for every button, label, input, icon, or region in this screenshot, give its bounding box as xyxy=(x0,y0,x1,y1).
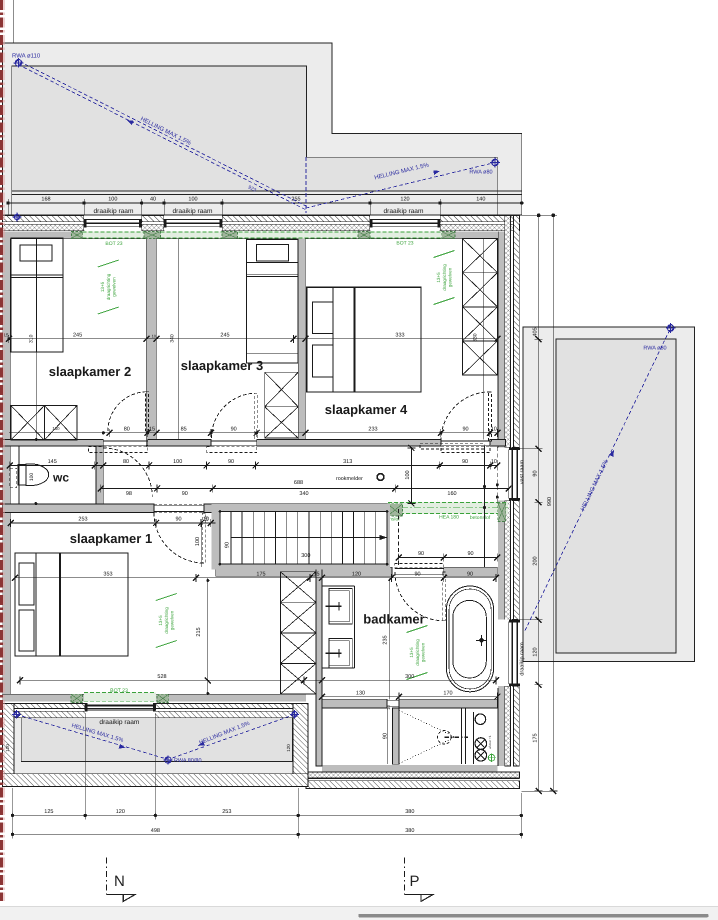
svg-text:380: 380 xyxy=(405,828,414,834)
svg-text:310: 310 xyxy=(28,334,34,343)
svg-text:160: 160 xyxy=(447,491,456,497)
svg-text:draaikip raam: draaikip raam xyxy=(520,642,526,676)
svg-text:draaikip raam: draaikip raam xyxy=(94,208,134,215)
svg-text:200: 200 xyxy=(532,556,538,565)
svg-text:100: 100 xyxy=(188,197,197,203)
svg-text:90: 90 xyxy=(182,491,188,497)
svg-text:175: 175 xyxy=(532,733,538,742)
svg-text:120: 120 xyxy=(116,809,125,815)
svg-text:253: 253 xyxy=(78,517,87,523)
svg-text:betonslof: betonslof xyxy=(470,515,491,521)
svg-text:90: 90 xyxy=(532,470,538,476)
svg-text:slaapkamer 4: slaapkamer 4 xyxy=(325,402,408,417)
svg-text:P: P xyxy=(410,873,420,890)
svg-text:90: 90 xyxy=(231,427,237,433)
svg-text:BOT 23: BOT 23 xyxy=(110,688,128,694)
svg-text:10: 10 xyxy=(152,334,157,339)
svg-text:RWA ø80: RWA ø80 xyxy=(643,346,666,352)
svg-text:175: 175 xyxy=(256,572,265,578)
svg-text:RWA ø80: RWA ø80 xyxy=(469,170,492,176)
svg-text:340: 340 xyxy=(299,491,308,497)
svg-text:215: 215 xyxy=(196,627,202,636)
svg-text:draagrichting: draagrichting xyxy=(442,264,447,291)
svg-text:gewelven: gewelven xyxy=(421,642,426,662)
svg-text:vast raam: vast raam xyxy=(520,460,526,485)
svg-text:draagrichting: draagrichting xyxy=(164,607,169,634)
svg-text:100: 100 xyxy=(29,473,35,482)
svg-text:RWA 80/80: RWA 80/80 xyxy=(174,758,202,764)
svg-text:10: 10 xyxy=(491,459,497,465)
svg-text:990: 990 xyxy=(547,497,553,506)
svg-text:245: 245 xyxy=(73,333,82,339)
svg-text:90: 90 xyxy=(383,733,389,739)
svg-text:13+5: 13+5 xyxy=(409,647,414,658)
svg-text:N: N xyxy=(114,873,125,890)
svg-text:90: 90 xyxy=(228,459,234,465)
svg-text:badkamer: badkamer xyxy=(363,612,424,627)
svg-text:BOT 23: BOT 23 xyxy=(396,241,413,247)
svg-text:wc: wc xyxy=(52,471,69,485)
svg-text:90: 90 xyxy=(175,517,181,523)
svg-text:380: 380 xyxy=(405,809,414,815)
svg-text:90: 90 xyxy=(462,427,468,433)
svg-text:100: 100 xyxy=(173,459,182,465)
svg-text:340: 340 xyxy=(169,334,175,343)
svg-text:688: 688 xyxy=(294,480,303,486)
svg-text:80: 80 xyxy=(123,459,129,465)
svg-text:100: 100 xyxy=(195,537,201,546)
svg-text:15: 15 xyxy=(149,427,155,433)
svg-text:120: 120 xyxy=(352,572,361,578)
svg-text:498: 498 xyxy=(151,828,160,834)
svg-text:13+5: 13+5 xyxy=(100,281,105,292)
svg-text:168: 168 xyxy=(41,197,50,203)
svg-text:draagrichting: draagrichting xyxy=(415,639,420,666)
svg-text:draaikip raam: draaikip raam xyxy=(99,719,139,726)
svg-text:RWA ø110: RWA ø110 xyxy=(12,53,41,60)
svg-text:90: 90 xyxy=(462,459,468,465)
svg-text:140: 140 xyxy=(476,197,485,203)
svg-text:90: 90 xyxy=(414,572,420,578)
svg-text:313: 313 xyxy=(343,459,352,465)
svg-text:405: 405 xyxy=(532,327,538,336)
svg-text:gewelven: gewelven xyxy=(112,277,117,297)
svg-text:253: 253 xyxy=(222,809,231,815)
svg-text:draagrichting: draagrichting xyxy=(106,273,111,300)
svg-text:120: 120 xyxy=(532,647,538,656)
svg-text:10: 10 xyxy=(491,427,497,433)
svg-text:233: 233 xyxy=(368,427,377,433)
svg-text:333: 333 xyxy=(395,333,404,339)
svg-text:15: 15 xyxy=(313,572,319,578)
svg-text:330: 330 xyxy=(472,333,478,342)
svg-text:gewelven: gewelven xyxy=(448,267,453,287)
svg-text:98: 98 xyxy=(126,491,132,497)
svg-text:afvoer +1: afvoer +1 xyxy=(488,735,492,749)
svg-text:90: 90 xyxy=(225,542,231,548)
svg-text:120: 120 xyxy=(286,744,291,752)
svg-text:40: 40 xyxy=(150,197,156,203)
svg-text:slaapkamer 1: slaapkamer 1 xyxy=(70,531,152,546)
svg-text:145: 145 xyxy=(48,459,57,465)
svg-text:85: 85 xyxy=(181,427,187,433)
svg-text:245: 245 xyxy=(220,333,229,339)
svg-text:draaikip raam: draaikip raam xyxy=(173,208,213,215)
svg-text:80: 80 xyxy=(124,427,130,433)
svg-text:90: 90 xyxy=(467,551,473,557)
svg-text:100: 100 xyxy=(405,470,411,479)
svg-text:10: 10 xyxy=(203,517,209,523)
svg-text:130: 130 xyxy=(356,690,365,696)
svg-text:BOT 23: BOT 23 xyxy=(105,241,122,247)
svg-text:160: 160 xyxy=(52,426,60,431)
svg-text:13+5: 13+5 xyxy=(436,272,441,283)
svg-text:528: 528 xyxy=(157,674,166,680)
svg-text:125: 125 xyxy=(44,809,53,815)
svg-text:draaikip raam: draaikip raam xyxy=(384,208,424,215)
svg-text:slaapkamer 2: slaapkamer 2 xyxy=(49,364,131,379)
svg-text:10: 10 xyxy=(386,705,391,710)
svg-text:90: 90 xyxy=(418,551,424,557)
svg-text:300: 300 xyxy=(405,674,414,680)
svg-text:gewelven: gewelven xyxy=(170,610,175,630)
svg-text:90: 90 xyxy=(467,572,473,578)
svg-text:170: 170 xyxy=(443,690,452,696)
svg-text:13+5: 13+5 xyxy=(158,615,163,626)
svg-text:120: 120 xyxy=(5,744,10,752)
svg-text:HEA 180: HEA 180 xyxy=(439,515,459,521)
svg-text:353: 353 xyxy=(103,572,112,578)
svg-text:rookmelder: rookmelder xyxy=(336,476,363,482)
svg-text:120: 120 xyxy=(400,197,409,203)
svg-text:300: 300 xyxy=(301,553,310,559)
svg-text:235: 235 xyxy=(383,635,389,644)
svg-text:100: 100 xyxy=(108,197,117,203)
svg-text:slaapkamer 3: slaapkamer 3 xyxy=(181,358,263,373)
